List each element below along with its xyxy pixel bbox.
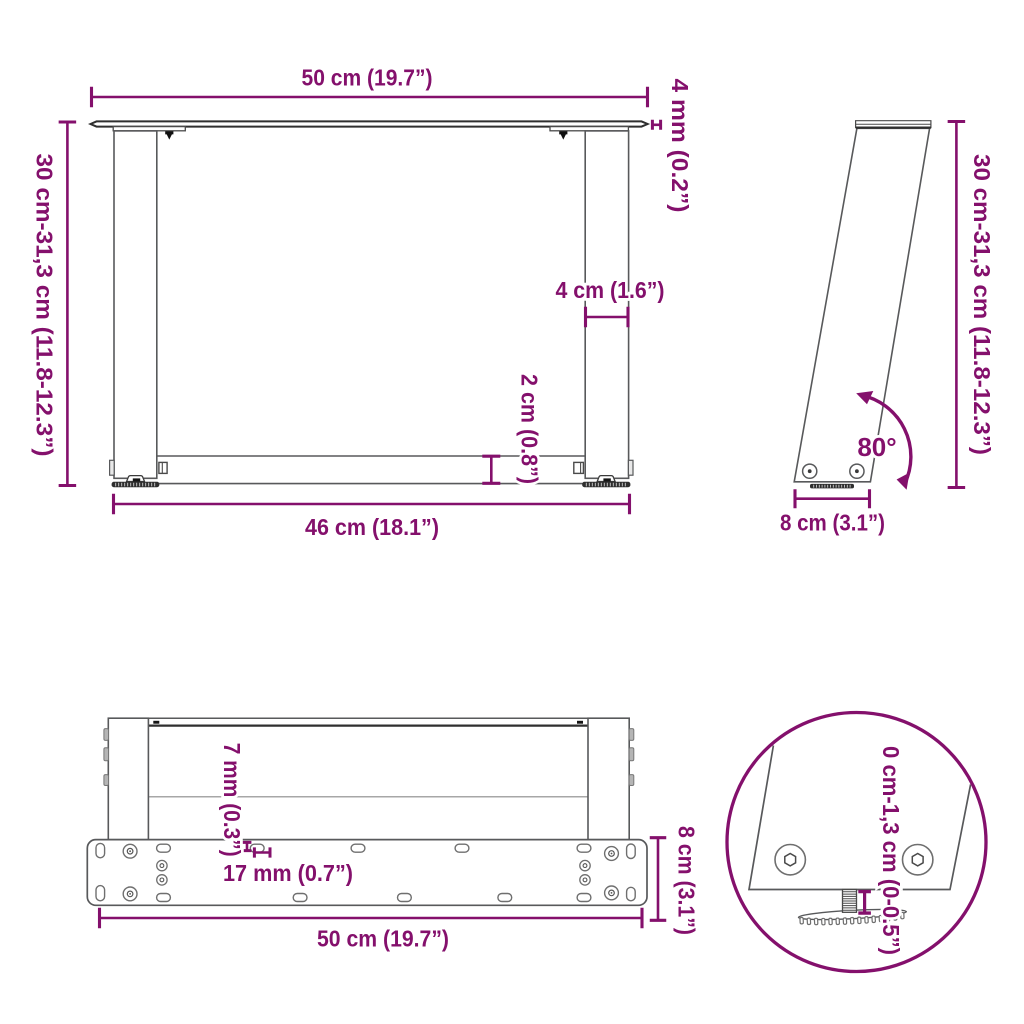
svg-text:4 cm (1.6”): 4 cm (1.6”): [556, 277, 665, 303]
svg-text:80°: 80°: [857, 432, 896, 462]
svg-text:46 cm (18.1”): 46 cm (18.1”): [305, 514, 439, 540]
svg-text:7 mm (0.3”): 7 mm (0.3”): [219, 743, 245, 857]
svg-text:4 mm (0.2”): 4 mm (0.2”): [667, 79, 693, 213]
svg-text:50 cm (19.7”): 50 cm (19.7”): [317, 926, 449, 952]
svg-text:0 cm-1,3 cm (0-0.5”): 0 cm-1,3 cm (0-0.5”): [878, 746, 904, 955]
svg-text:50 cm (19.7”): 50 cm (19.7”): [302, 65, 433, 91]
svg-text:2 cm (0.8”): 2 cm (0.8”): [517, 374, 543, 484]
svg-text:8 cm (3.1”): 8 cm (3.1”): [673, 826, 699, 935]
svg-text:17 mm (0.7”): 17 mm (0.7”): [223, 860, 353, 886]
svg-text:30 cm-31,3 cm (11.8-12.3”): 30 cm-31,3 cm (11.8-12.3”): [969, 154, 995, 455]
svg-text:8 cm (3.1”): 8 cm (3.1”): [780, 510, 885, 536]
svg-text:30 cm-31,3 cm (11.8-12.3”): 30 cm-31,3 cm (11.8-12.3”): [31, 154, 57, 457]
